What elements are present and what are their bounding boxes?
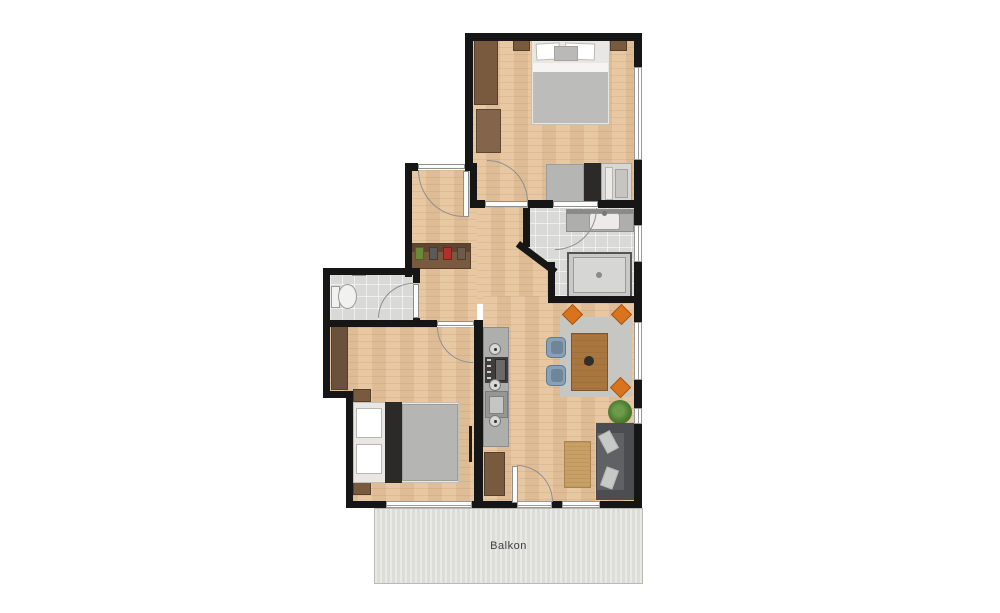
bedroom-lower-door-leaf xyxy=(437,321,474,326)
wall xyxy=(600,501,641,508)
window xyxy=(634,225,642,262)
duvet-fold xyxy=(533,63,608,72)
table-decor xyxy=(584,356,594,366)
shoes-red xyxy=(443,247,452,260)
shower-drain xyxy=(596,272,602,278)
armchair-seat xyxy=(615,169,628,198)
bed-duvet xyxy=(402,404,458,481)
floorplan: Balkon xyxy=(0,0,1000,613)
exterior-mask xyxy=(318,398,346,513)
wall xyxy=(634,205,642,225)
counter-knob xyxy=(489,379,501,391)
entrance-door-leaf xyxy=(418,164,465,169)
wall xyxy=(413,275,420,283)
wc-door-leaf xyxy=(413,284,419,318)
bed-blanket xyxy=(533,72,608,123)
living-sideboard xyxy=(484,452,505,496)
dresser-top xyxy=(476,109,501,153)
oven-door xyxy=(495,359,506,381)
dining-chair-blue xyxy=(546,365,566,386)
side-cabinet xyxy=(584,163,601,204)
wall xyxy=(465,33,641,41)
wall xyxy=(323,268,420,275)
nightstand-bottom xyxy=(353,482,371,495)
wall xyxy=(346,501,386,508)
wall xyxy=(405,171,412,277)
sofa-rug xyxy=(564,441,591,488)
shoes-brown xyxy=(457,247,466,260)
wall xyxy=(548,296,641,303)
shoes-gray xyxy=(429,247,438,260)
window xyxy=(634,67,642,160)
wall xyxy=(634,160,642,205)
wall xyxy=(405,163,418,171)
counter-knob xyxy=(489,415,501,427)
wall xyxy=(634,380,642,408)
wall xyxy=(474,320,483,508)
wardrobe-lower xyxy=(331,322,348,390)
radiator xyxy=(469,426,472,462)
pillow xyxy=(356,444,382,474)
counter-knob xyxy=(489,343,501,355)
balcony-deck: Balkon xyxy=(374,508,643,584)
faucet xyxy=(602,211,607,216)
oven-knobs xyxy=(487,359,491,381)
plant xyxy=(608,400,632,424)
toilet-bowl xyxy=(338,284,357,309)
bed-runner xyxy=(385,402,402,483)
wall xyxy=(634,424,642,508)
wardrobe-top xyxy=(474,39,498,105)
nightstand-upper xyxy=(353,389,371,402)
wall xyxy=(323,268,330,398)
bathroom-door-leaf xyxy=(553,201,598,207)
balcony-door-glass xyxy=(517,501,552,508)
wall xyxy=(634,33,642,67)
sofa-armrest xyxy=(596,490,634,500)
window xyxy=(634,322,642,380)
armchair-back xyxy=(605,167,613,200)
wall xyxy=(465,163,477,171)
pillow xyxy=(356,408,382,438)
wall xyxy=(477,200,485,208)
window xyxy=(562,501,600,508)
wall xyxy=(634,262,642,322)
sofa-back xyxy=(624,423,634,500)
wall xyxy=(528,200,553,208)
window xyxy=(634,408,642,424)
daybed xyxy=(546,164,584,203)
kitchen-sink-basin xyxy=(489,396,504,414)
wall xyxy=(323,320,437,327)
sofa-armrest xyxy=(596,423,634,433)
folded-throw xyxy=(554,46,578,61)
wall xyxy=(472,501,517,508)
dining-chair-blue xyxy=(546,337,566,358)
wall xyxy=(465,33,473,170)
wall xyxy=(470,171,477,208)
window xyxy=(386,501,472,508)
balcony-label: Balkon xyxy=(490,540,527,552)
wall xyxy=(552,501,562,508)
wall xyxy=(523,208,530,247)
wall xyxy=(346,391,353,508)
shoes-green xyxy=(415,247,424,260)
